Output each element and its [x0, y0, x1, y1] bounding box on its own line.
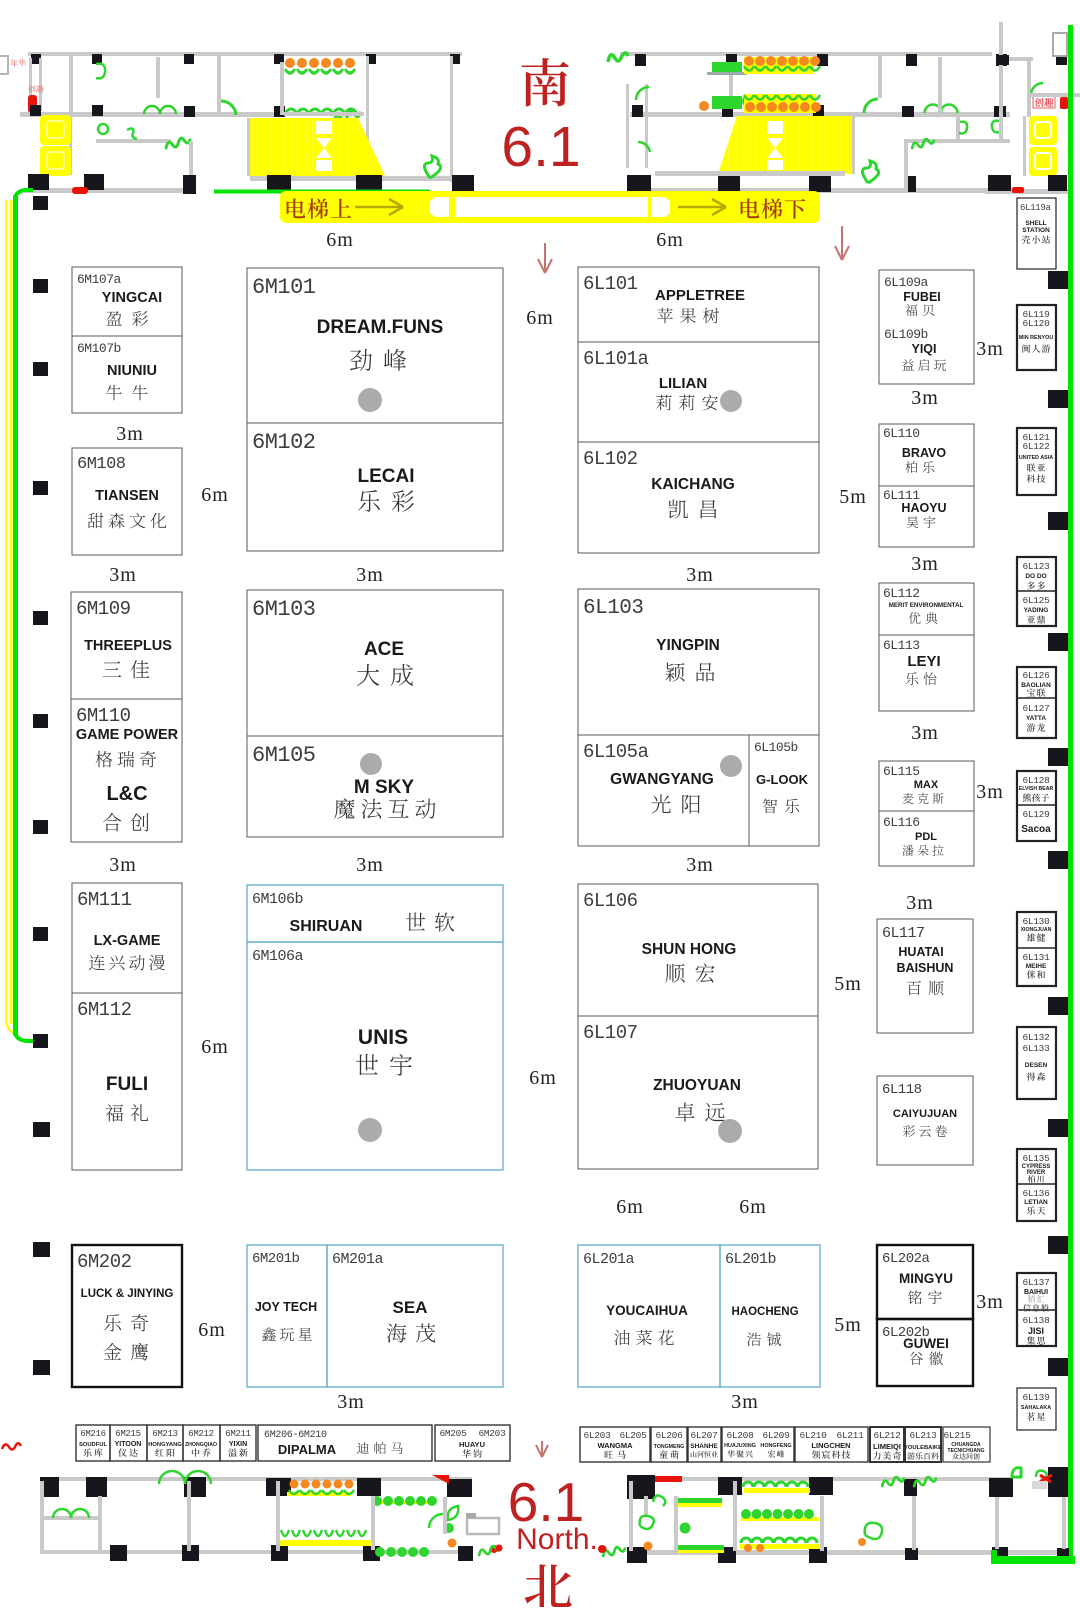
svg-text:6L123: 6L123 — [1022, 561, 1050, 572]
svg-text:6M106a: 6M106a — [252, 948, 304, 965]
svg-text:WANGMA: WANGMA — [598, 1441, 634, 1450]
svg-text:6M102: 6M102 — [252, 430, 316, 455]
svg-text:6M215: 6M215 — [115, 1429, 141, 1439]
svg-text:BAOLIAN: BAOLIAN — [1021, 682, 1051, 689]
svg-text:3m: 3m — [976, 338, 1004, 360]
svg-text:5m: 5m — [839, 486, 867, 508]
svg-text:BAIHUI: BAIHUI — [1024, 1289, 1048, 1296]
svg-text:5m: 5m — [834, 1314, 862, 1336]
svg-text:MAX: MAX — [914, 779, 939, 791]
svg-text:6L205: 6L205 — [619, 1430, 647, 1441]
svg-text:6L202a: 6L202a — [882, 1251, 930, 1267]
svg-text:6L203: 6L203 — [583, 1430, 611, 1441]
svg-text:6L139: 6L139 — [1022, 1392, 1050, 1403]
svg-text:6L132: 6L132 — [1022, 1032, 1050, 1043]
svg-text:SHIRUAN: SHIRUAN — [290, 918, 363, 935]
svg-text:6M213: 6M213 — [152, 1429, 178, 1439]
svg-text:XIONGJUAN: XIONGJUAN — [1021, 927, 1052, 933]
svg-text:6L135: 6L135 — [1022, 1153, 1050, 1164]
svg-text:NIUNIU: NIUNIU — [107, 363, 157, 379]
svg-text:6L131: 6L131 — [1022, 952, 1050, 963]
svg-text:6L130: 6L130 — [1022, 916, 1050, 927]
svg-text:6M106b: 6M106b — [252, 891, 303, 908]
svg-text:6L109a: 6L109a — [884, 275, 929, 290]
svg-text:MERIT ENVIRONMENTAL: MERIT ENVIRONMENTAL — [889, 602, 964, 609]
svg-text:YOULEBAIKE: YOULEBAIKE — [904, 1445, 942, 1451]
svg-text:FULI: FULI — [106, 1074, 148, 1095]
svg-text:6L128: 6L128 — [1022, 775, 1050, 786]
svg-text:SAHALAKA: SAHALAKA — [1021, 1405, 1051, 1411]
svg-text:TIANSEN: TIANSEN — [95, 488, 159, 504]
svg-text:6L115: 6L115 — [883, 764, 920, 779]
svg-text:6L211: 6L211 — [836, 1430, 864, 1441]
svg-text:6L118: 6L118 — [882, 1082, 922, 1098]
svg-text:6L102: 6L102 — [583, 448, 638, 470]
svg-text:6L101: 6L101 — [583, 273, 638, 295]
svg-text:UNIS: UNIS — [358, 1026, 408, 1049]
svg-text:SEA: SEA — [393, 1298, 428, 1317]
svg-text:TECNICHUANG: TECNICHUANG — [948, 1448, 985, 1454]
svg-text:MEIHE: MEIHE — [1026, 963, 1047, 970]
svg-text:6L113: 6L113 — [883, 638, 920, 653]
svg-text:3m: 3m — [116, 423, 144, 445]
svg-text:6L125: 6L125 — [1022, 595, 1050, 606]
svg-text:6m: 6m — [201, 484, 229, 506]
svg-text:6L105a: 6L105a — [583, 741, 649, 763]
svg-text:6m: 6m — [201, 1036, 229, 1058]
svg-text:HUAYU: HUAYU — [459, 1440, 485, 1449]
svg-text:6M105: 6M105 — [252, 743, 316, 768]
svg-text:6L109b: 6L109b — [884, 327, 928, 342]
svg-text:SOUDFUL: SOUDFUL — [79, 1442, 107, 1448]
svg-text:6L207: 6L207 — [690, 1430, 717, 1441]
svg-text:6m: 6m — [198, 1319, 226, 1341]
svg-text:3m: 3m — [356, 564, 384, 586]
svg-text:6M101: 6M101 — [252, 275, 316, 300]
svg-text:STATION: STATION — [1022, 227, 1050, 234]
svg-text:GAME POWER: GAME POWER — [76, 727, 179, 743]
svg-text:RIVER: RIVER — [1027, 1170, 1046, 1176]
svg-text:6L122: 6L122 — [1022, 441, 1050, 452]
svg-text:YADING: YADING — [1024, 607, 1049, 614]
svg-text:6m: 6m — [526, 307, 554, 329]
svg-text:3m: 3m — [356, 854, 384, 876]
svg-text:ACE: ACE — [364, 639, 404, 660]
svg-text:CAIYUJUAN: CAIYUJUAN — [893, 1108, 957, 1120]
svg-text:MINGYU: MINGYU — [899, 1271, 953, 1286]
svg-text:6M203: 6M203 — [478, 1428, 506, 1439]
svg-text:North.: North. — [516, 1523, 598, 1556]
svg-text:HONGYANG: HONGYANG — [148, 1442, 182, 1448]
svg-text:6m: 6m — [656, 229, 684, 251]
svg-text:SHUN HONG: SHUN HONG — [642, 941, 737, 958]
svg-text:6.1: 6.1 — [501, 115, 580, 179]
svg-text:6L107: 6L107 — [583, 1022, 638, 1044]
svg-text:LETIAN: LETIAN — [1024, 1199, 1048, 1206]
svg-text:HAOCHENG: HAOCHENG — [731, 1306, 798, 1318]
svg-text:YINGCAI: YINGCAI — [102, 290, 162, 306]
svg-text:BRAVO: BRAVO — [902, 446, 946, 460]
svg-text:3m: 3m — [976, 1291, 1004, 1313]
svg-text:LILIAN: LILIAN — [659, 375, 707, 392]
svg-text:6L209: 6L209 — [762, 1430, 790, 1441]
svg-text:6L103: 6L103 — [583, 597, 644, 620]
svg-text:GUWEI: GUWEI — [903, 1336, 949, 1351]
svg-text:KAICHANG: KAICHANG — [651, 476, 735, 493]
svg-text:3m: 3m — [976, 781, 1004, 803]
svg-text:6M202: 6M202 — [77, 1251, 132, 1273]
svg-text:6M111: 6M111 — [77, 889, 132, 911]
svg-text:6L119a: 6L119a — [1020, 203, 1052, 213]
svg-text:3m: 3m — [337, 1391, 365, 1413]
svg-text:PDL: PDL — [915, 831, 937, 843]
svg-text:LECAI: LECAI — [358, 466, 415, 487]
svg-text:6L215: 6L215 — [943, 1430, 971, 1441]
svg-text:6L127: 6L127 — [1022, 703, 1049, 714]
svg-text:6L106: 6L106 — [583, 890, 638, 912]
svg-text:6L129: 6L129 — [1022, 809, 1050, 820]
svg-text:6m: 6m — [739, 1196, 767, 1218]
svg-text:6L208: 6L208 — [726, 1430, 754, 1441]
svg-text:HONGFENG: HONGFENG — [760, 1443, 791, 1449]
svg-text:3m: 3m — [109, 854, 137, 876]
svg-text:YIXIN: YIXIN — [229, 1441, 247, 1448]
svg-text:BAISHUN: BAISHUN — [897, 961, 954, 975]
svg-text:6L206: 6L206 — [655, 1430, 683, 1441]
svg-text:YOUCAIHUA: YOUCAIHUA — [606, 1303, 688, 1318]
svg-text:6M206-6M210: 6M206-6M210 — [264, 1430, 327, 1441]
svg-text:ZHUOYUAN: ZHUOYUAN — [653, 1077, 741, 1094]
svg-text:JOY TECH: JOY TECH — [255, 1300, 317, 1314]
svg-text:3m: 3m — [911, 553, 939, 575]
svg-text:6L117: 6L117 — [882, 925, 925, 942]
svg-text:DIPALMA: DIPALMA — [278, 1442, 337, 1457]
svg-text:6M103: 6M103 — [252, 597, 316, 622]
svg-text:6M107b: 6M107b — [77, 341, 121, 356]
svg-text:3m: 3m — [686, 564, 714, 586]
svg-text:DREAM.FUNS: DREAM.FUNS — [317, 317, 444, 338]
svg-text:6L201b: 6L201b — [725, 1251, 776, 1268]
svg-text:HAOYU: HAOYU — [901, 501, 946, 515]
svg-text:UNITED ASIA: UNITED ASIA — [1019, 455, 1053, 461]
svg-text:6L133: 6L133 — [1022, 1043, 1050, 1054]
svg-text:6L116: 6L116 — [883, 815, 920, 830]
svg-text:JISI: JISI — [1028, 1326, 1044, 1336]
svg-text:LINGCHEN: LINGCHEN — [811, 1441, 850, 1450]
svg-text:TONGMENG: TONGMENG — [654, 1444, 684, 1450]
svg-text:YINGPIN: YINGPIN — [656, 637, 720, 654]
svg-text:SHELL: SHELL — [1025, 220, 1046, 227]
svg-text:FUBEI: FUBEI — [903, 290, 941, 304]
svg-text:THREEPLUS: THREEPLUS — [84, 638, 172, 654]
svg-text:3m: 3m — [109, 564, 137, 586]
svg-text:6M216: 6M216 — [80, 1429, 106, 1439]
svg-text:LX-GAME: LX-GAME — [94, 933, 161, 949]
svg-text:6M107a: 6M107a — [77, 272, 122, 287]
svg-text:SHANHE: SHANHE — [690, 1443, 718, 1450]
svg-text:6M205: 6M205 — [439, 1428, 467, 1439]
svg-text:6L105b: 6L105b — [754, 740, 798, 755]
svg-text:3m: 3m — [686, 854, 714, 876]
svg-text:L&C: L&C — [106, 783, 147, 805]
svg-text:3m: 3m — [906, 892, 934, 914]
svg-text:6m: 6m — [616, 1196, 644, 1218]
svg-text:YITOON: YITOON — [115, 1441, 142, 1448]
svg-text:Sacoa: Sacoa — [1021, 824, 1051, 835]
svg-text:M SKY: M SKY — [354, 777, 415, 798]
svg-text:6L120: 6L120 — [1022, 318, 1050, 329]
svg-text:DO DO: DO DO — [1025, 573, 1046, 580]
svg-text:DESEN: DESEN — [1025, 1062, 1048, 1069]
svg-text:6M201b: 6M201b — [252, 1251, 300, 1267]
svg-text:LUCK & JINYING: LUCK & JINYING — [81, 1288, 174, 1300]
svg-text:HUAJUXING: HUAJUXING — [724, 1443, 756, 1449]
svg-text:YATTA: YATTA — [1026, 715, 1046, 722]
svg-text:6M212: 6M212 — [188, 1429, 214, 1439]
svg-text:6L138: 6L138 — [1022, 1315, 1050, 1326]
svg-text:ELVISH BEAR: ELVISH BEAR — [1019, 786, 1054, 792]
svg-text:6M211: 6M211 — [225, 1429, 251, 1439]
svg-text:6M110: 6M110 — [76, 705, 131, 727]
svg-text:3m: 3m — [731, 1391, 759, 1413]
svg-text:MIN RENYOU: MIN RENYOU — [1019, 335, 1054, 341]
svg-text:6L101a: 6L101a — [583, 348, 649, 370]
svg-text:6M201a: 6M201a — [332, 1251, 384, 1268]
svg-text:GWANGYANG: GWANGYANG — [610, 771, 714, 788]
svg-text:6L137: 6L137 — [1022, 1277, 1049, 1288]
svg-text:6L126: 6L126 — [1022, 670, 1050, 681]
svg-text:6m: 6m — [529, 1067, 557, 1089]
svg-text:3m: 3m — [911, 722, 939, 744]
svg-text:G-LOOK: G-LOOK — [756, 772, 809, 787]
svg-text:5m: 5m — [834, 973, 862, 995]
svg-text:LIMEIQI: LIMEIQI — [873, 1442, 901, 1451]
svg-text:6L136: 6L136 — [1022, 1188, 1050, 1199]
svg-text:YIQI: YIQI — [911, 342, 936, 356]
svg-text:6L110: 6L110 — [883, 426, 920, 441]
svg-text:6L210: 6L210 — [799, 1430, 827, 1441]
svg-text:6L112: 6L112 — [883, 586, 920, 601]
svg-text:6L212: 6L212 — [873, 1430, 901, 1441]
svg-text:LEYI: LEYI — [907, 653, 940, 670]
svg-text:6L213: 6L213 — [909, 1430, 937, 1441]
svg-text:6L201a: 6L201a — [583, 1251, 635, 1268]
svg-text:6M112: 6M112 — [77, 999, 132, 1021]
svg-text:6M109: 6M109 — [76, 598, 131, 620]
svg-text:APPLETREE: APPLETREE — [655, 287, 745, 304]
svg-text:6m: 6m — [326, 229, 354, 251]
svg-text:ZHONGQIAO: ZHONGQIAO — [185, 1442, 217, 1448]
svg-text:6M108: 6M108 — [77, 455, 126, 474]
svg-text:HUATAI: HUATAI — [898, 945, 943, 959]
svg-text:3m: 3m — [911, 387, 939, 409]
